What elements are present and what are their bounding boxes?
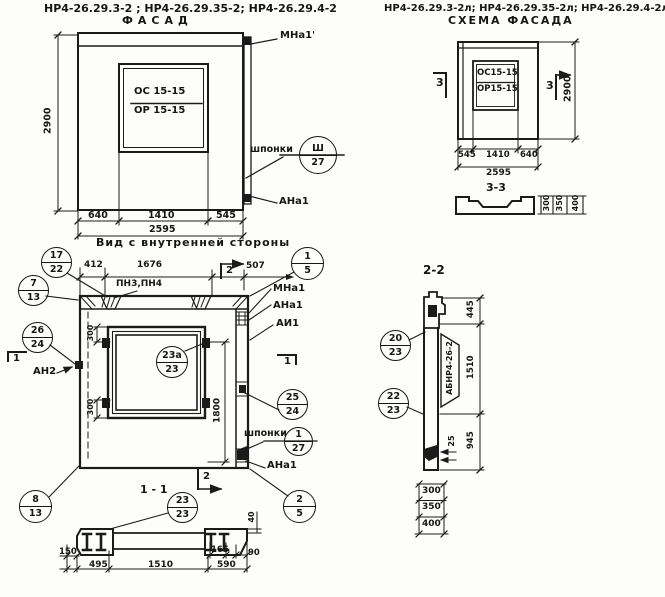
callout-26-24-bottom: 24 — [23, 338, 52, 352]
callout-26-24: 26 24 — [22, 322, 53, 353]
callout-23a-23: 23а 23 — [156, 346, 188, 378]
callout-sh-27-top: Ш — [300, 137, 336, 156]
section-mark-2-top: 2 — [226, 266, 233, 276]
inner-dim-507: 507 — [246, 262, 265, 271]
schema-dim-total: 2595 — [486, 169, 511, 178]
facade-dim-total: 2595 — [149, 225, 175, 235]
callout-25-24-bottom: 24 — [278, 405, 307, 419]
inner-label-ana1: АНа1 — [273, 301, 303, 311]
inner-dim-1800: 1800 — [214, 389, 223, 433]
schema-dim-height: 2900 — [563, 67, 573, 111]
schema-dim-640: 640 — [520, 151, 538, 160]
callout-1-27-top: 1 — [285, 428, 312, 442]
inner-label-pn: ПН3,ПН4 — [116, 280, 162, 289]
s22-dim-300: 300 — [422, 487, 441, 496]
section-1-1-label: 1 - 1 — [140, 484, 168, 495]
callout-1-27-bottom: 27 — [285, 442, 312, 455]
inner-dim-300-bottom: 300 — [87, 385, 95, 429]
schema-dim-545: 545 — [458, 151, 476, 160]
inner-view-title: Вид с внутренней стороны — [96, 237, 290, 248]
facade-title: ФАСАД — [122, 15, 193, 26]
section-2-2-label: 2-2 — [423, 264, 445, 276]
inner-label-mna1: МНа1 — [273, 284, 305, 294]
s22-dim-445: 445 — [467, 287, 476, 331]
callout-20-23-top: 20 — [381, 331, 410, 346]
callout-17-22-bottom: 22 — [42, 263, 71, 277]
callout-7-13: 7 13 — [18, 275, 49, 306]
s22-dim-25: 25 — [448, 419, 456, 463]
s22-dim-350: 350 — [422, 503, 441, 512]
inner-label-shponki: шпонки — [244, 429, 287, 439]
codes-right: НР4-26.29.3-2л; НР4-26.29.35-2л; НР4-26.… — [384, 4, 665, 14]
facade-window-mark-bottom: ОР 15-15 — [134, 106, 185, 116]
s11-dim-1510: 1510 — [148, 561, 173, 570]
s11-dim-150: 150 — [59, 548, 77, 557]
callout-1-27: 1 27 — [284, 427, 313, 456]
callout-17-22-top: 17 — [42, 248, 71, 263]
callout-26-24-top: 26 — [23, 323, 52, 338]
callout-25-24-top: 25 — [278, 390, 307, 405]
callout-8-13: 8 13 — [19, 490, 52, 523]
callout-23a-23-bottom: 23 — [157, 363, 187, 378]
facade-label-ana1: АНа1 — [279, 197, 309, 207]
s11-dim-590: 590 — [217, 561, 236, 570]
callout-20-23: 20 23 — [380, 330, 411, 361]
section-mark-1-left: 1 — [13, 354, 20, 364]
s33-dim-400: 400 — [572, 181, 580, 225]
callout-23-23-top: 23 — [168, 493, 197, 508]
callout-23-23-bottom: 23 — [168, 508, 197, 522]
inner-label-an2: АН2 — [33, 367, 56, 377]
section-3-3-label: 3-3 — [486, 182, 506, 193]
s22-dim-1510: 1510 — [467, 345, 476, 389]
callout-23-23: 23 23 — [167, 492, 198, 523]
s33-dim-350: 350 — [556, 181, 564, 225]
facade-dim-640: 640 — [88, 211, 108, 221]
section-mark-2-bottom: 2 — [203, 472, 210, 482]
s22-label-abnr: АБНР4-26-2 — [446, 323, 454, 413]
callout-sh-27-bottom: 27 — [300, 156, 336, 174]
inner-dim-300-top: 300 — [87, 311, 95, 355]
facade-label-mna1: МНа1' — [280, 31, 315, 41]
s22-dim-400: 400 — [422, 520, 441, 529]
callout-22-23: 22 23 — [378, 388, 409, 419]
s11-dim-495: 495 — [89, 561, 108, 570]
callout-1-5-top: 1 — [292, 248, 323, 264]
inner-dim-1676: 1676 — [137, 261, 162, 270]
callout-17-22: 17 22 — [41, 247, 72, 278]
callout-23a-23-top: 23а — [157, 347, 187, 363]
callout-sh-27: Ш 27 — [299, 136, 337, 174]
callout-2-5: 2 5 — [283, 490, 316, 523]
facade-linework — [54, 32, 344, 239]
schema-window-mark-top: ОС15-15 — [477, 69, 518, 78]
schema-title: СХЕМА ФАСАДА — [448, 15, 574, 26]
callout-8-13-top: 8 — [20, 491, 51, 507]
facade-window-mark-top: ОС 15-15 — [134, 87, 185, 97]
callout-7-13-bottom: 13 — [19, 291, 48, 305]
codes-left: НР4-26.29.3-2 ; НР4-26.29.35-2; НР4-26.2… — [44, 3, 337, 14]
facade-dim-height: 2900 — [43, 99, 53, 143]
callout-22-23-bottom: 23 — [379, 404, 408, 418]
section-mark-3-right: 3 — [546, 80, 554, 91]
callout-25-24: 25 24 — [277, 389, 308, 420]
s11-dim-40: 40 — [248, 495, 256, 539]
section-mark-3-left: 3 — [436, 77, 444, 88]
callout-2-5-top: 2 — [284, 491, 315, 507]
s33-dim-300: 300 — [543, 181, 551, 225]
section-mark-1-right: 1 — [284, 357, 291, 367]
facade-dim-1410: 1410 — [148, 211, 174, 221]
callout-2-5-bottom: 5 — [284, 507, 315, 522]
inner-label-ai1: АИ1 — [276, 319, 299, 329]
s11-dim-90: 90 — [248, 549, 260, 558]
inner-label-ana1-bottom: АНа1 — [267, 461, 297, 471]
facade-dim-545: 545 — [216, 211, 236, 221]
s22-dim-945: 945 — [467, 418, 476, 462]
callout-1-5-bottom: 5 — [292, 264, 323, 279]
callout-8-13-bottom: 13 — [20, 507, 51, 522]
callout-7-13-top: 7 — [19, 276, 48, 291]
schema-dim-1410: 1410 — [486, 151, 510, 160]
callout-20-23-bottom: 23 — [381, 346, 410, 360]
s11-dim-165: 165 — [211, 546, 229, 555]
callout-1-5: 1 5 — [291, 247, 324, 280]
inner-dim-412: 412 — [84, 261, 103, 270]
facade-label-shponki: шпонки — [250, 145, 293, 155]
drawing-sheet: НР4-26.29.3-2 ; НР4-26.29.35-2; НР4-26.2… — [0, 0, 665, 597]
callout-22-23-top: 22 — [379, 389, 408, 404]
schema-window-mark-bottom: ОР15-15 — [477, 85, 518, 94]
